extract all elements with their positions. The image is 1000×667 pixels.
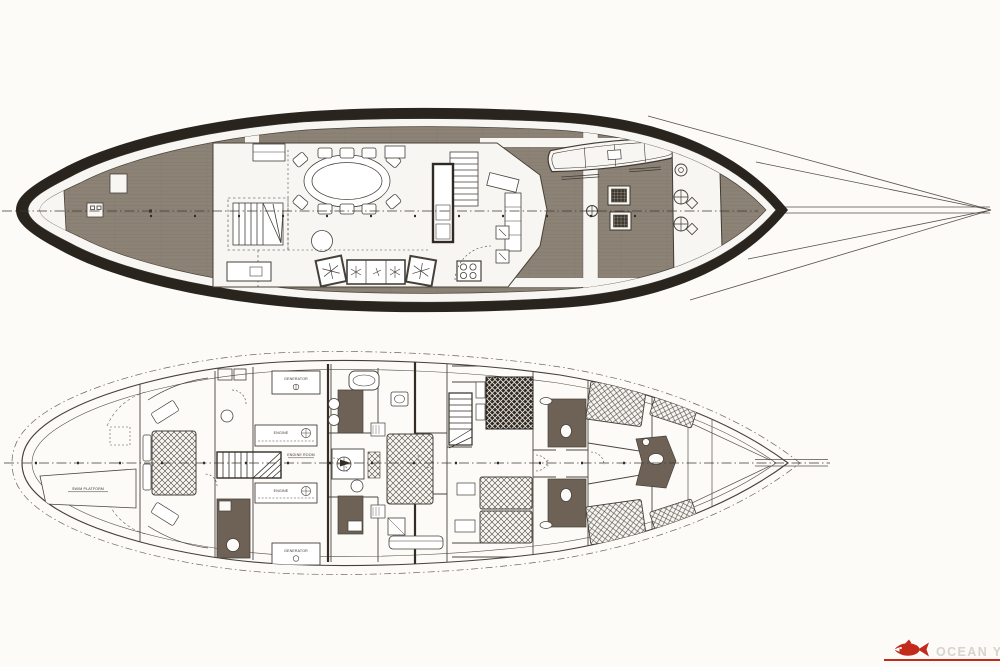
sideboard [253,144,285,161]
engine-bottom-box [255,483,317,503]
dining-table [304,155,390,207]
engine-bottom-label: ENGINE [274,489,289,493]
engine-top-label: ENGINE [274,431,289,435]
master-bed [387,434,433,504]
upper-deck-plan [2,108,991,312]
round-stool [312,231,333,252]
generator-bottom-label: GENERATOR [284,549,308,553]
console-table [385,146,405,158]
yacht-plans-svg: GENERATOR ENGINE ENGINE ROOM ENGINE GENE… [0,0,1000,667]
brand-logo: OCEAN YA [884,640,1000,662]
lower-deck-plan: GENERATOR ENGINE ENGINE ROOM ENGINE GENE… [4,352,830,575]
aft-bathroom-bottom [217,499,250,558]
engine-top-box [255,425,317,446]
stove [457,261,481,281]
generator-top-label: GENERATOR [284,377,308,381]
swim-platform-label: SWIM PLATFORM [72,487,104,491]
lower-stairs-mid [449,393,472,448]
logo-text: OCEAN YA [936,645,1000,659]
generator-top-box [272,371,320,394]
guest-dark-bed [486,377,533,429]
aft-double-bed [152,431,196,495]
fish-icon [894,640,929,657]
master-sofa [389,536,443,549]
scanned-plan-image: GENERATOR ENGINE ENGINE ROOM ENGINE GENE… [0,0,1000,667]
logo-underline [884,659,1000,661]
engine-room-label: ENGINE ROOM [287,453,315,457]
generator-bottom-box [272,543,320,565]
lower-stairs-aft [217,452,281,478]
